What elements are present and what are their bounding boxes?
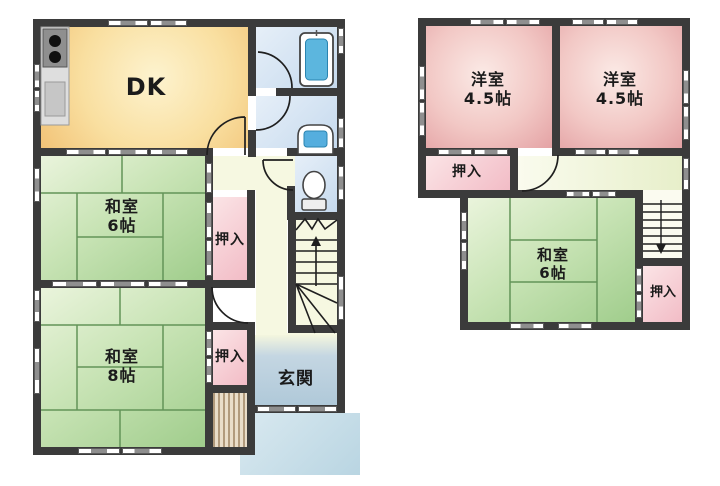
room-label-western-right: 洋室 4.5帖 [580, 71, 660, 109]
closet-label: 押入 [205, 349, 255, 366]
bathtub-icon [300, 30, 333, 86]
room-label-dk: DK [116, 73, 176, 101]
room-name: 和室 [105, 197, 139, 216]
room-name: 和室 [105, 347, 139, 366]
room-size: 8帖 [107, 366, 136, 385]
entrance-label: 玄関 [256, 369, 336, 389]
washbasin-icon [298, 125, 333, 154]
room-label-washitsu6: 和室 6帖 [82, 198, 162, 236]
room-size: 4.5帖 [596, 89, 644, 108]
closet-label: 押入 [641, 285, 685, 300]
closet-label: 押入 [205, 232, 255, 249]
room-label-western-left: 洋室 4.5帖 [448, 71, 528, 109]
toilet-icon [302, 172, 326, 211]
room-label-washitsu6-2f: 和室 6帖 [513, 247, 593, 282]
room-label-washitsu8: 和室 8帖 [82, 348, 162, 386]
room-name: 洋室 [471, 70, 505, 89]
closet-label: 押入 [432, 164, 502, 181]
room-size: 4.5帖 [464, 89, 512, 108]
floorplan-canvas: DK 和室 6帖 和室 8帖 押入 押入 玄関 洋室 4.5帖 洋室 4.5帖 … [0, 0, 720, 486]
room-name: 洋室 [603, 70, 637, 89]
room-size: 6帖 [539, 264, 566, 282]
kitchen-counter-icon [41, 27, 69, 125]
room-size: 6帖 [107, 216, 136, 235]
room-name: 和室 [537, 246, 569, 264]
